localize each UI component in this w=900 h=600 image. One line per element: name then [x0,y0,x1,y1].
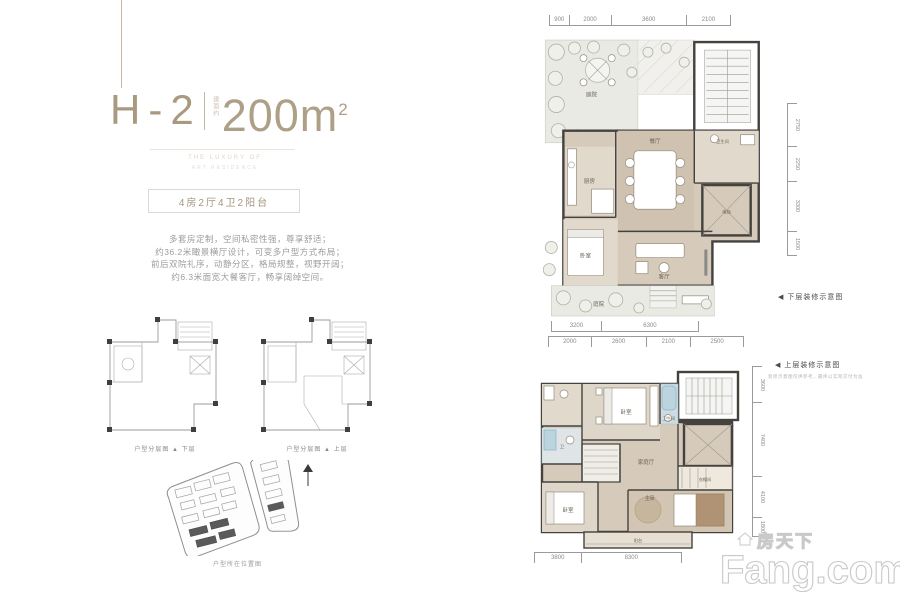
dim-chain-right-lower: 2750 2250 3300 1500 [787,103,797,256]
up-triangle-icon: ▲ [172,447,179,453]
mini-plan-lower-level [98,312,234,438]
description-line: 多套房定制，空间私密性强，尊享舒适； [125,233,375,246]
dim-segment: 2600 [592,337,647,347]
dim-segment: 7400 [753,403,762,477]
up-triangle-icon: ▲ [324,447,331,453]
tagline-english-2: ART RESIDENCE [120,165,330,171]
dim-label: 2250 [794,144,800,184]
mini-plan-caption-lower: 户型分层图 ▲ 下层 [100,444,230,453]
description-line: 约36.2米瞰景横厅设计，可变多户型方式布局； [125,246,375,259]
spec-badge: 4房2厅4卫2阳台 [148,189,300,213]
room-label-hall: 家庭厅 [638,458,655,466]
plan-lower-floor: 庭院 厨房 餐厅 卫生间 电梯 客厅 卧室 庭院 [543,34,765,320]
room-label-garden: 庭院 [586,90,598,98]
house-icon [736,532,754,547]
mini-plan-caption-upper: 户型分层图 ▲ 上层 [252,444,382,453]
mini-caption-level: 上层 [334,447,348,453]
tagline-english-1: THE LUXURY OF [120,155,330,161]
area-value: 200m2 [222,84,349,142]
dim-label: 2500 [691,338,743,347]
room-label-bedroom-bottom: 卧室 [562,506,574,514]
room-label-dining: 餐厅 [649,137,661,145]
dim-segment: 3200 [552,321,602,331]
dim-segment: 2000 [549,337,592,347]
area-prefix: 建面约 [211,96,220,117]
dim-label: 6300 [602,322,698,331]
dim-segment: 900 [550,15,570,25]
area-number: 200m [222,90,339,141]
dim-chain-top-upper: 2000 2600 2100 2500 [548,336,744,347]
room-label-closet: 衣帽间 [699,476,712,483]
mini-caption-level: 下层 [182,447,196,453]
dim-segment: 2000 [570,15,612,25]
dim-label: 2100 [647,338,691,347]
dim-label: 2000 [549,338,591,347]
north-arrow-icon [303,464,313,486]
site-plan [155,460,323,556]
dim-label: 3600 [612,16,686,25]
dim-chain-bottom-upper: 3800 8300 [534,552,682,563]
dim-segment: 3800 [535,553,582,563]
dim-segment: 3600 [753,367,762,403]
dim-label: 8300 [582,554,681,563]
brand-en-text: Fang.com [720,552,900,588]
room-label-elevator: 电梯 [722,208,730,215]
dim-label: 7400 [759,420,765,460]
room-label-living: 客厅 [659,273,671,281]
dim-segment: 2100 [687,15,731,25]
dim-label: 2100 [687,16,730,25]
dim-label: 3800 [535,554,581,563]
dim-label: 2750 [794,105,800,145]
dim-label: 2000 [570,16,611,25]
mini-caption-text: 户型分层图 [134,447,169,453]
dim-label: 1500 [794,224,800,264]
dim-chain-top-lower: 900 2000 3600 2100 [549,15,731,26]
room-label-bedroom: 卧室 [580,252,592,260]
dim-label: 3600 [759,365,765,405]
dim-segment: 3600 [612,15,687,25]
dim-label: 3200 [552,322,601,331]
dim-segment: 2500 [691,337,744,347]
dim-label: 3300 [794,186,800,226]
dim-segment: 2750 [788,104,797,147]
plan-upper-floor: 卧室 卫生间 卫 家庭厅 衣帽间 主卧 卧室 阳台 [528,370,748,550]
description-paragraph: 多套房定制，空间私密性强，尊享舒适； 约36.2米瞰景横厅设计，可变多户型方式布… [125,233,375,283]
brand-watermark: 房天下 Fang.com [720,527,900,588]
dim-segment: 8300 [582,553,682,563]
dim-label: 900 [550,16,569,25]
floorplan-page: { "colors": {"accent": "#a8997f", "dim_l… [0,0,900,600]
room-label-garden-bottom: 庭院 [593,300,605,308]
area-superscript: 2 [338,100,348,119]
description-line: 前后双院礼序，动静分区，格局规整，视野开阔； [125,258,375,271]
room-label-bath-top: 卫生间 [663,415,676,422]
floor-label-upper: ◀ 上层装修示意图 [775,360,840,370]
mini-caption-text: 户型分层图 [286,447,321,453]
room-label-kitchen: 厨房 [584,177,596,185]
dim-chain-right-upper: 3600 7400 4100 1800 [752,366,762,537]
unit-title-block: H-2 建面约 200m2 [110,84,367,142]
mini-plan-upper-level [252,312,388,438]
floor-label-lower: ◀ 下层装修示意图 [778,292,843,302]
dim-segment: 6300 [602,321,699,331]
room-label-bath-left: 卫 [560,444,564,449]
room-label-master: 主卧 [644,494,656,502]
tagline-hairline [150,149,295,150]
room-label-bedroom-top: 卧室 [620,408,632,416]
room-label-bath: 卫生间 [716,138,729,145]
description-line: 约6.3米面宽大餐客厅，畅享阔绰空间。 [125,271,375,284]
dim-chain-bottom-lower: 3200 6300 [551,321,699,332]
dim-label: 2600 [592,338,646,347]
site-plan-caption: 户型所在位置图 [170,559,305,568]
title-divider [204,92,205,130]
dim-segment: 2250 [788,147,797,182]
dim-segment: 1500 [788,232,797,256]
dim-segment: 2100 [647,337,692,347]
room-label-balcony: 阳台 [634,537,642,544]
decorative-vertical-line [121,0,122,88]
unit-code: H-2 [110,84,202,136]
floor-label-note: 装修示意图仅供参考，最终以实际交付为准 [768,374,888,380]
